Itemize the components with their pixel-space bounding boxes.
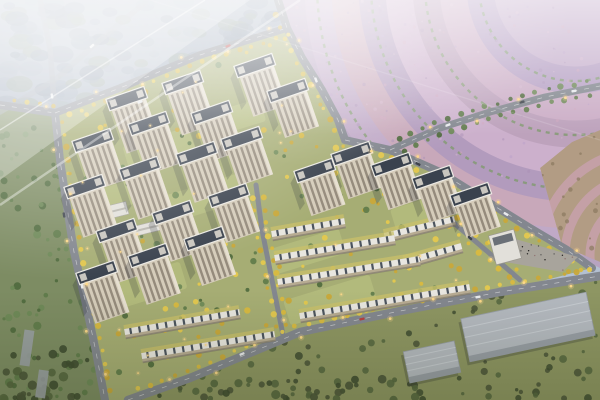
aerial-rendering-canvas — [0, 0, 600, 400]
aerial-site-rendering — [0, 0, 600, 400]
atmosphere-haze — [0, 0, 600, 400]
